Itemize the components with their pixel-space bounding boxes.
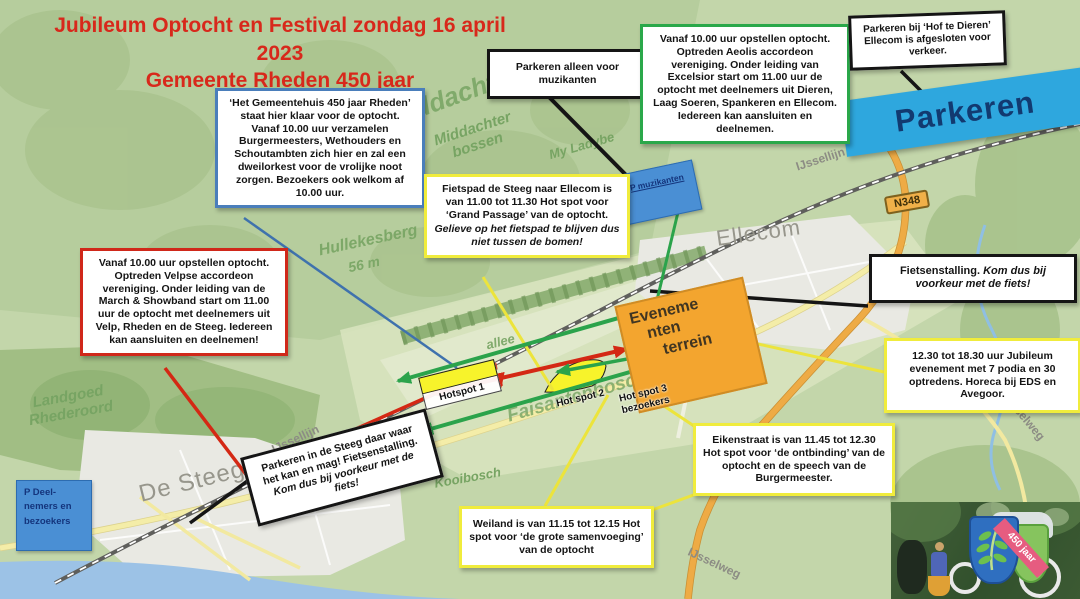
callout-jubileum-evenement: 12.30 tot 18.30 uur Jubileum evenement m… (884, 338, 1080, 413)
fietsenstalling-lead: Fietsenstalling. (900, 265, 983, 277)
fietspad-text: Fietspad de Steeg naar Ellecom is van 11… (434, 183, 620, 221)
person-head (935, 542, 944, 551)
callout-parkeren-muzikanten: Parkeren alleen voor muzikanten (487, 49, 648, 99)
callout-weiland: Weiland is van 11.15 tot 12.15 Hot spot … (459, 506, 654, 568)
jubileum-logo-photo: 450 jaar (891, 502, 1080, 599)
callout-dieren-optocht: Vanaf 10.00 uur opstellen optocht. Optre… (640, 24, 850, 144)
p-deelnemers-line: nemers en (24, 500, 91, 514)
foliage (891, 502, 961, 542)
event-map-poster: Middachten Middachter bossen My Ladybe H… (0, 0, 1080, 599)
callout-eikenstraat: Eikenstraat is van 11.45 tot 12.30 Hot s… (693, 423, 895, 496)
callout-hof-te-dieren: Parkeren bij ‘Hof te Dieren’ Ellecom is … (848, 10, 1007, 70)
title-line1: Jubileum Optocht en Festival zondag 16 a… (35, 12, 525, 67)
person-body (931, 552, 947, 578)
person-skirt (928, 576, 950, 596)
p-deelnemers-line: bezoekers (24, 515, 91, 529)
page-title: Jubileum Optocht en Festival zondag 16 a… (35, 12, 525, 95)
horse (897, 540, 927, 594)
callout-fietsenstalling: Fietsenstalling. Kom dus bij voorkeur me… (869, 254, 1077, 303)
callout-velp-optocht: Vanaf 10.00 uur opstellen optocht. Optre… (80, 248, 288, 356)
fietspad-note: Gelieve op het fietspad te blijven dus n… (434, 223, 620, 249)
p-deelnemers-line: P Deel- (24, 486, 91, 500)
p-deelnemers-sign: P Deel- nemers en bezoekers (16, 480, 92, 551)
callout-gemeentehuis: ‘Het Gemeentehuis 450 jaar Rheden’ staat… (215, 88, 425, 208)
callout-fietspad: Fietspad de Steeg naar Ellecom is van 11… (424, 174, 630, 258)
